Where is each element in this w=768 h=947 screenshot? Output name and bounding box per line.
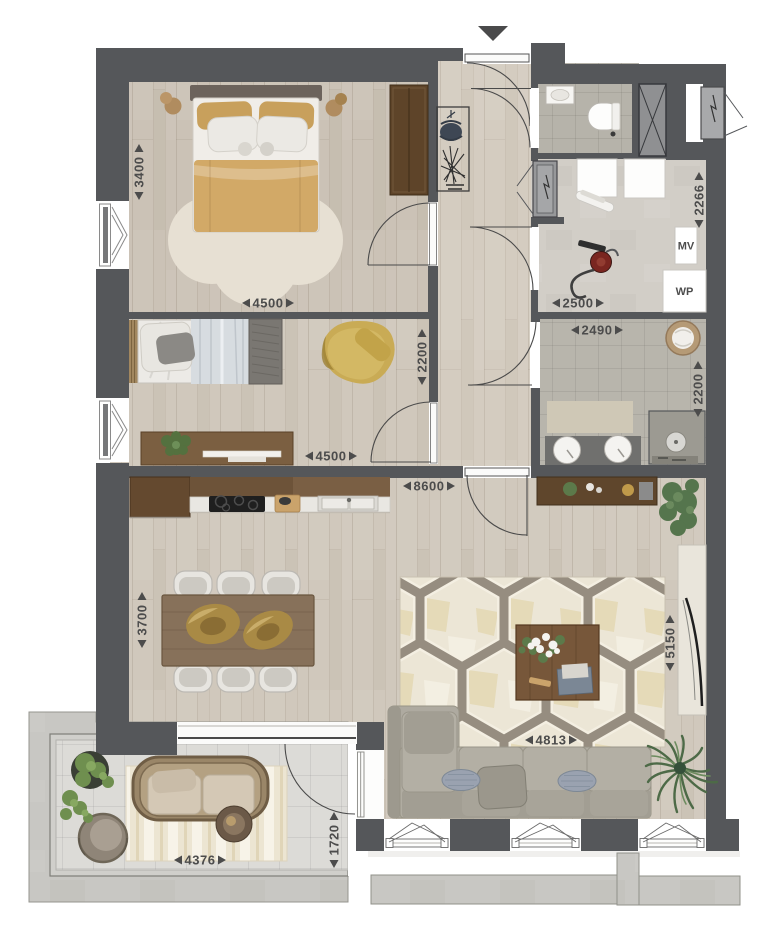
svg-text:2200: 2200 [691,374,706,405]
svg-text:5150: 5150 [663,628,678,659]
svg-text:WP: WP [676,286,694,298]
svg-text:2200: 2200 [415,342,430,373]
svg-text:2490: 2490 [582,323,613,338]
svg-text:4813: 4813 [536,733,567,748]
svg-text:3700: 3700 [135,605,150,636]
svg-text:2500: 2500 [563,296,594,311]
svg-text:1720: 1720 [327,825,342,856]
svg-text:MV: MV [678,241,695,253]
svg-text:4376: 4376 [185,853,216,868]
svg-text:4500: 4500 [253,296,284,311]
svg-text:3400: 3400 [132,157,147,188]
svg-text:4500: 4500 [316,449,347,464]
svg-text:8600: 8600 [414,479,445,494]
svg-text:2266: 2266 [692,185,707,216]
